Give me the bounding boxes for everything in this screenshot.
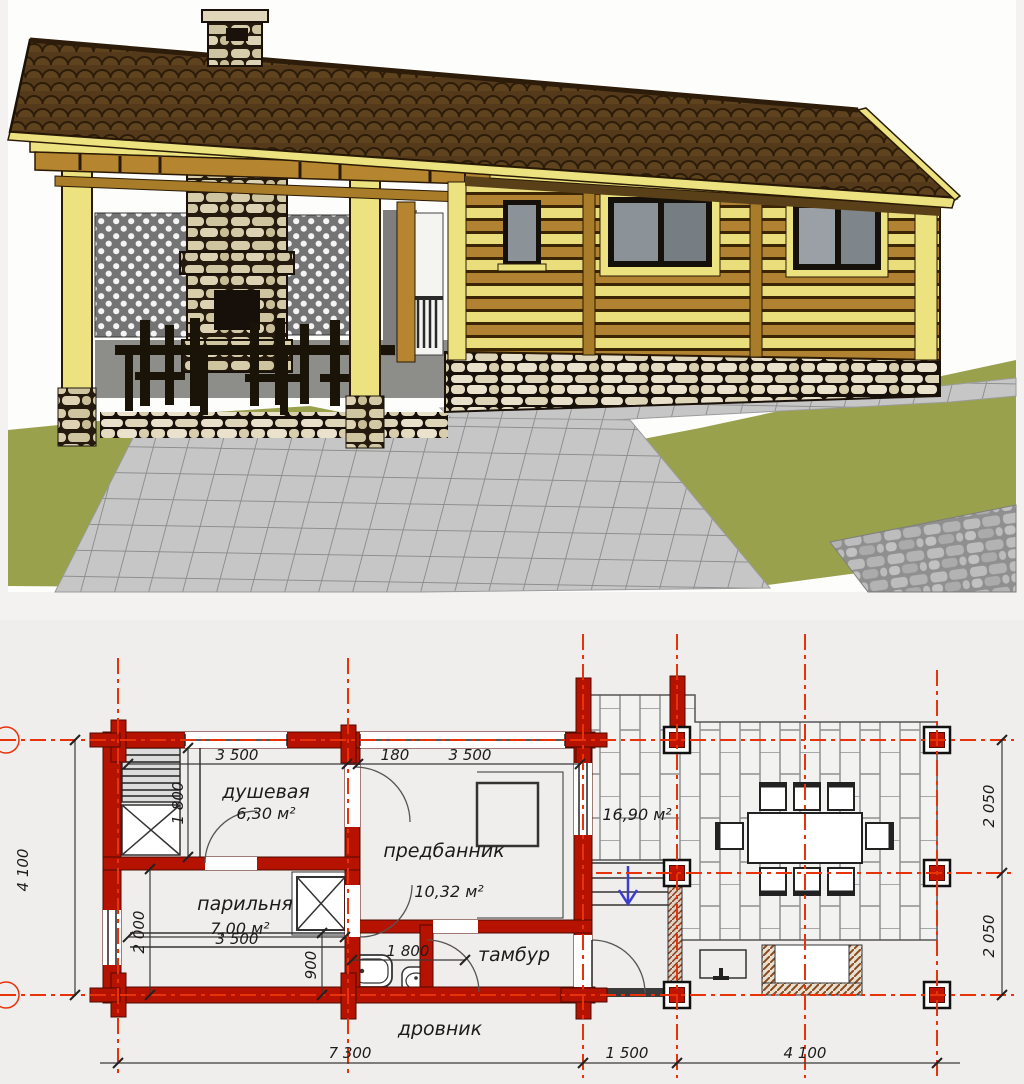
- screenshot-root: душевая 6,30 м² парильня 7,00 м² предбан…: [0, 0, 1024, 1084]
- lattice-panel-right: [287, 215, 350, 335]
- dim-bath-width: 1 800: [387, 942, 430, 960]
- area-label-terrace: 16,90 м²: [602, 805, 672, 824]
- dim-right-upper: 2 050: [980, 785, 998, 828]
- dim-shower-height: 1 800: [169, 782, 187, 825]
- window-2: [600, 190, 720, 276]
- area-label-shower: 6,30 м²: [236, 804, 296, 823]
- window-1: [498, 200, 546, 271]
- dim-top-left: 3 500: [216, 746, 259, 764]
- lattice-panel-left: [95, 213, 187, 337]
- corner-trim-right: [915, 200, 937, 360]
- house-render: [0, 0, 1024, 620]
- terrace-post-right: [350, 162, 380, 420]
- stove-box-steam: [292, 872, 350, 935]
- dim-corridor: 900: [302, 951, 320, 980]
- dim-top-right: 3 500: [449, 746, 492, 764]
- room-label-anteroom: предбанник: [383, 840, 505, 862]
- dim-left-total: 4 100: [14, 849, 32, 892]
- bbq-fireplace: [762, 945, 862, 995]
- area-label-anteroom: 10,32 м²: [414, 882, 484, 901]
- dim-steam-width: 3 500: [216, 930, 259, 948]
- room-label-vestibule: тамбур: [478, 944, 550, 966]
- log-cabin: [445, 168, 940, 412]
- dim-steam-height: 2 000: [130, 911, 148, 954]
- room-label-woodshed: дровник: [397, 1018, 483, 1040]
- dim-bottom-main: 7 300: [329, 1044, 372, 1062]
- room-label-steam: парильня: [197, 893, 293, 915]
- corner-trim-left: [448, 182, 466, 360]
- dim-right-lower: 2 050: [980, 915, 998, 958]
- wall-joint-2: [750, 192, 762, 357]
- post-base-right: [346, 396, 384, 448]
- dim-top-wall: 180: [381, 746, 410, 764]
- porch-post: [397, 202, 415, 362]
- floor-plan: душевая 6,30 м² парильня 7,00 м² предбан…: [0, 620, 1024, 1084]
- chimney: [202, 10, 268, 66]
- dim-bottom-terrace: 4 100: [784, 1044, 827, 1062]
- wall-joint-1: [583, 188, 595, 355]
- porch-column-wall: [668, 875, 682, 995]
- post-base-left: [58, 388, 96, 446]
- terrace-curb: [100, 412, 448, 438]
- room-label-shower: душевая: [221, 781, 310, 803]
- dim-bottom-porch: 1 500: [606, 1044, 649, 1062]
